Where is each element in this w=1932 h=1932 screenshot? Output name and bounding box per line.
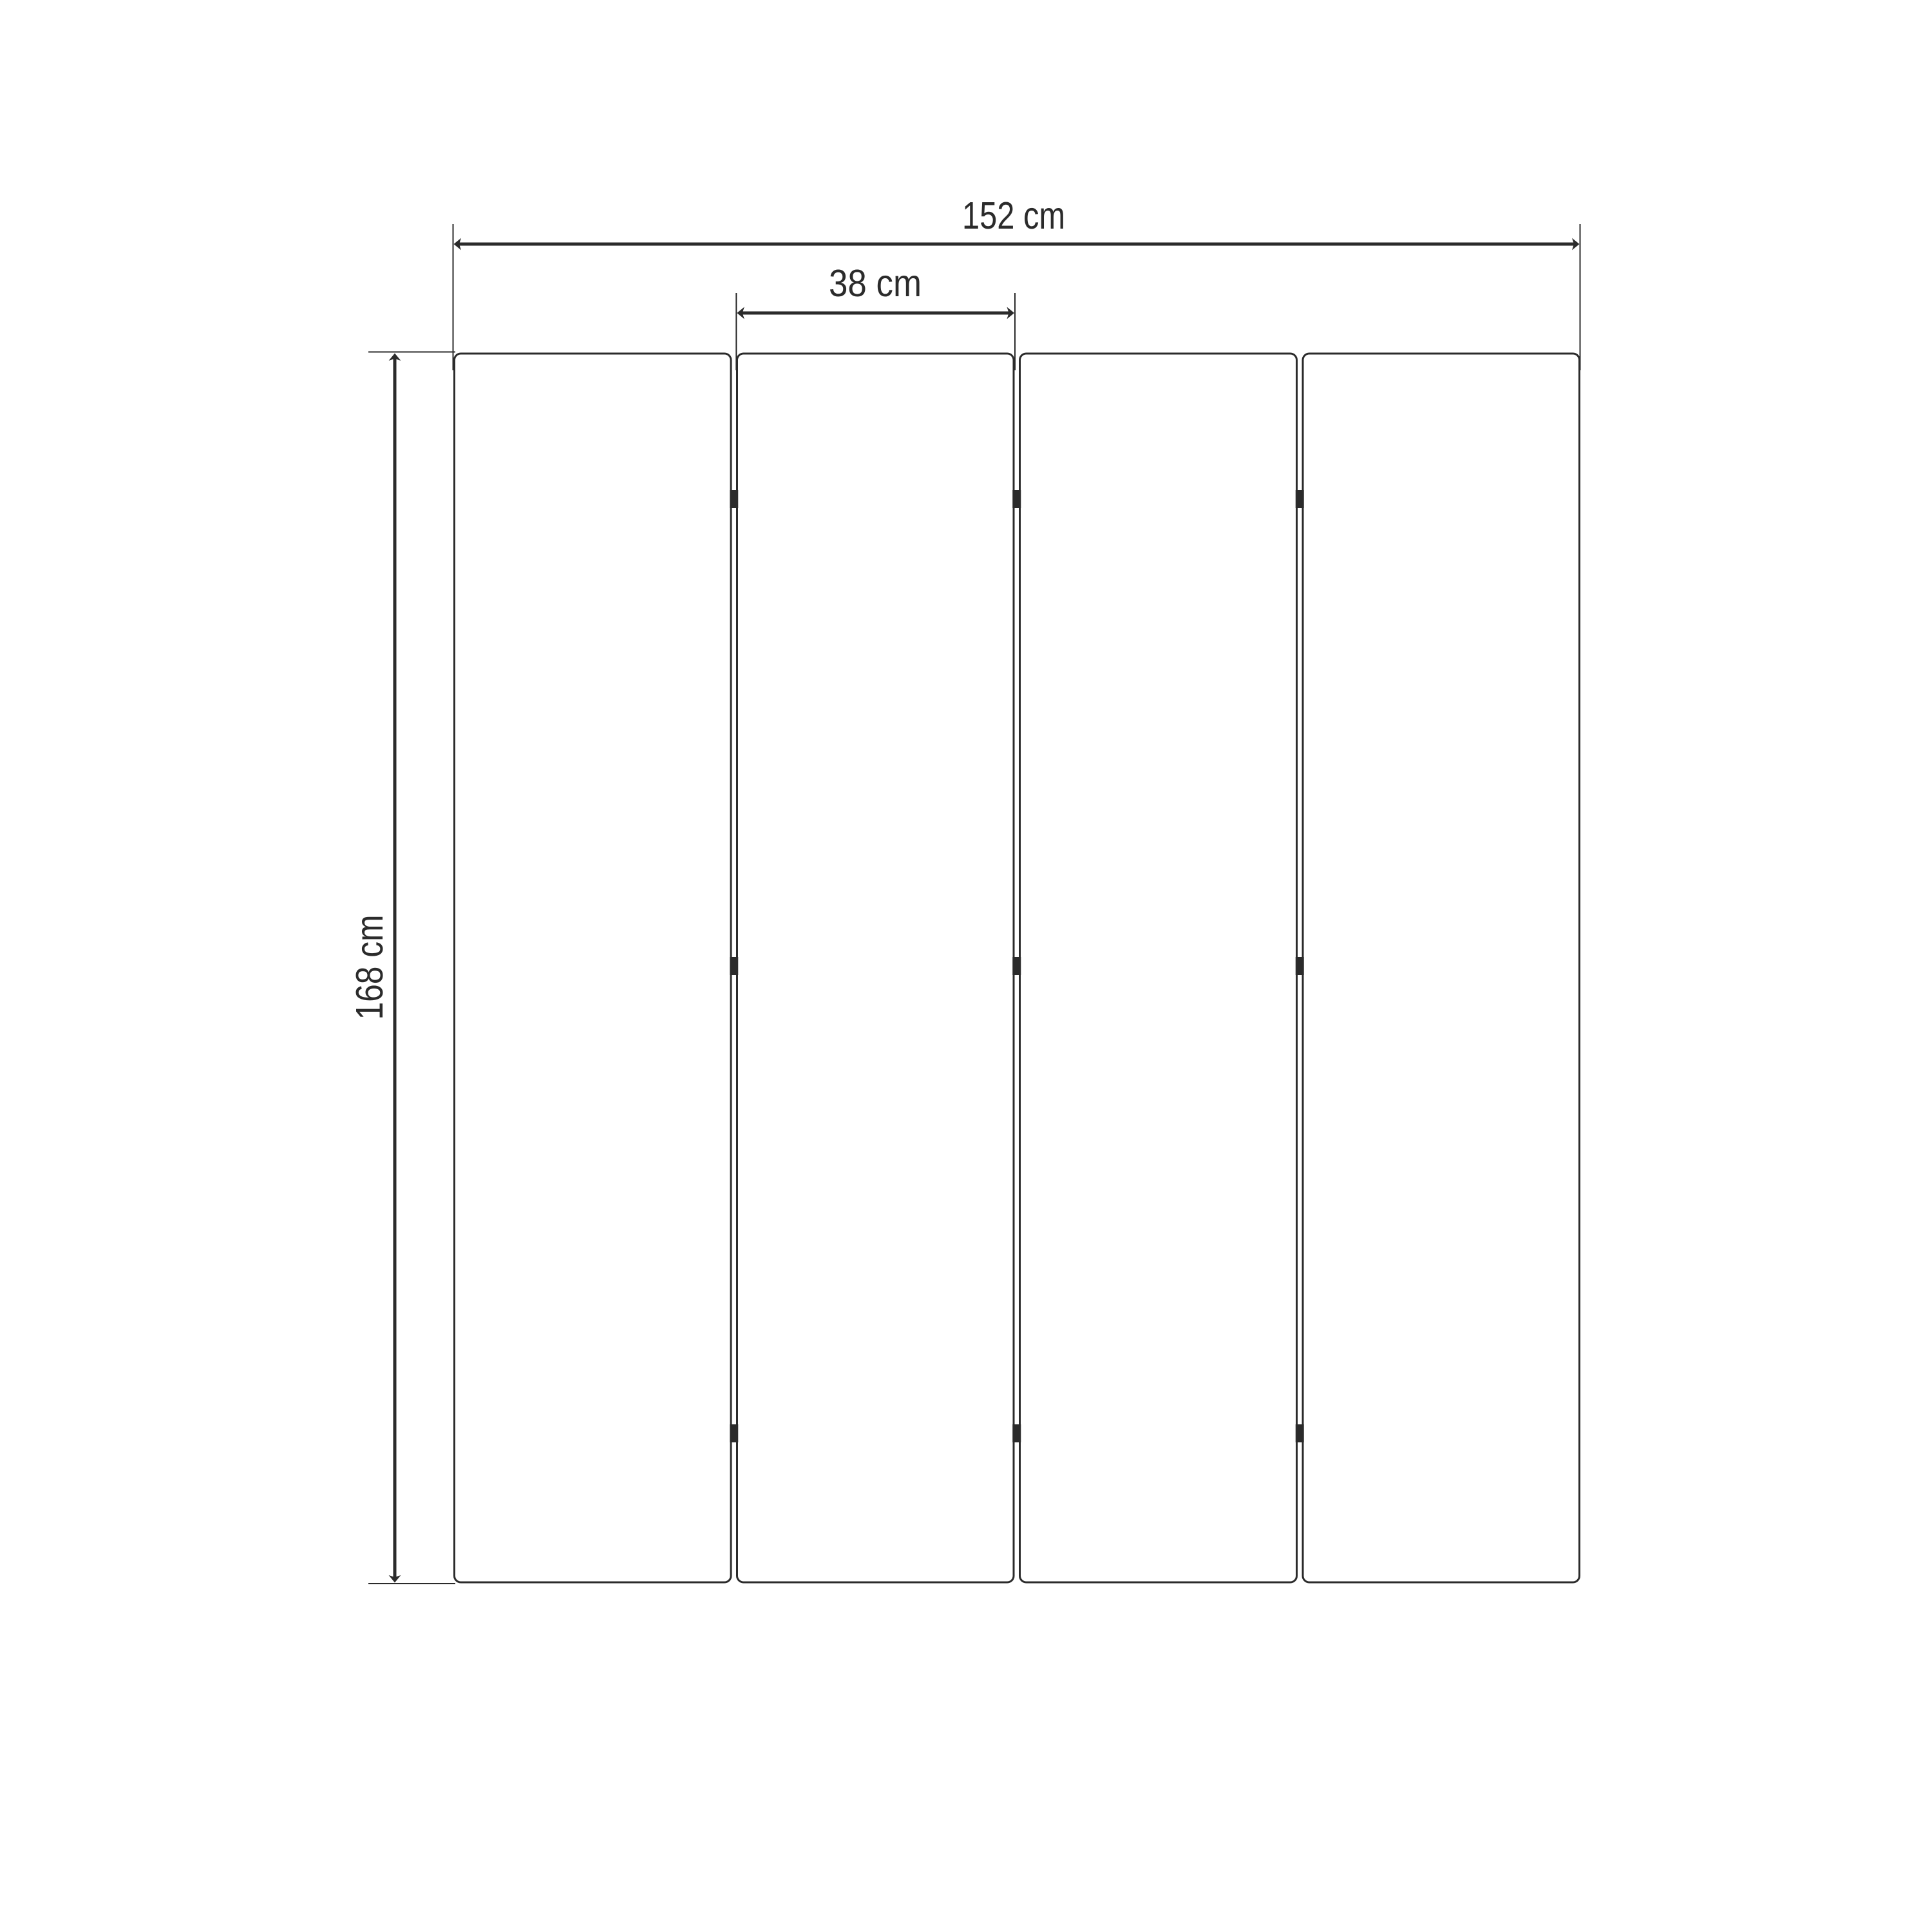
- svg-text:38 cm: 38 cm: [829, 262, 922, 305]
- svg-text:168 cm: 168 cm: [348, 915, 391, 1020]
- svg-text:152 cm: 152 cm: [962, 194, 1065, 237]
